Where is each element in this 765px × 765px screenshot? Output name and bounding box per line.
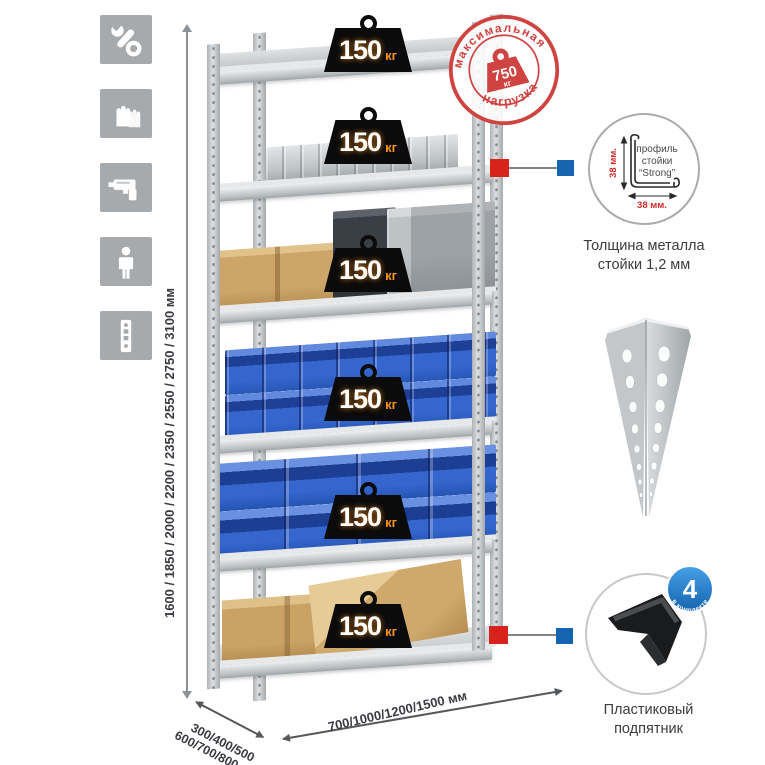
load-value: 150 <box>339 127 381 158</box>
thickness-caption-line2: стойки 1,2 мм <box>566 256 722 275</box>
load-unit: кг <box>385 48 397 63</box>
foot-caption-line2: подпятник <box>576 720 721 739</box>
load-unit: кг <box>385 624 397 639</box>
quantity-value: 4 <box>683 574 698 604</box>
post-profile-detail: 38 мм. 38 мм. профиль стойки “Strong” <box>586 111 702 227</box>
load-unit: кг <box>385 397 397 412</box>
load-badge: 150кг <box>324 15 412 72</box>
rack-post-icon <box>100 311 152 360</box>
load-value: 150 <box>339 384 381 415</box>
load-value: 150 <box>339 255 381 286</box>
load-value: 150 <box>339 35 381 66</box>
profile-label: “Strong” <box>639 168 675 179</box>
load-badge: 150кг <box>324 482 412 539</box>
thickness-caption: Толщина металла стойки 1,2 мм <box>566 237 722 275</box>
quantity-badge: 4 в комплекте <box>667 566 713 614</box>
callout-marker-blue <box>557 160 574 176</box>
load-badge: 150кг <box>324 364 412 421</box>
callout-marker-red <box>489 626 508 644</box>
callout-marker-red <box>490 159 509 177</box>
callout-line <box>509 167 557 169</box>
drill-icon <box>100 163 152 212</box>
load-unit: кг <box>385 268 397 283</box>
arrow-up-icon <box>182 24 192 32</box>
load-value: 150 <box>339 502 381 533</box>
foot-caption-line1: Пластиковый <box>576 701 721 720</box>
load-unit: кг <box>385 140 397 155</box>
load-unit: кг <box>385 515 397 530</box>
callout-line <box>507 634 556 636</box>
callout-marker-blue <box>556 628 573 644</box>
rack-post-left-front <box>207 44 220 690</box>
person-icon <box>100 237 152 286</box>
profile-dim-vertical: 38 мм. <box>608 148 619 178</box>
profile-label: профиль <box>636 143 677 155</box>
thickness-caption-line1: Толщина металла <box>566 237 722 256</box>
height-dimension-label: 1600 / 1850 / 2000 / 2200 / 2350 / 2550 … <box>162 203 180 703</box>
load-badge: 150кг <box>324 107 412 164</box>
product-infographic: 1600 / 1850 / 2000 / 2200 / 2350 / 2550 … <box>0 0 765 765</box>
load-badge: 150кг <box>324 591 412 648</box>
gloves-icon <box>100 89 152 138</box>
arrow-down-icon <box>182 691 192 699</box>
plastic-foot-image: 4 в комплекте <box>578 560 728 710</box>
height-dimension-line <box>186 31 188 691</box>
foot-caption: Пластиковый подпятник <box>576 701 721 739</box>
load-badge: 150кг <box>324 235 412 292</box>
corner-post-image <box>594 312 698 537</box>
profile-label: стойки <box>642 156 673 167</box>
load-value: 150 <box>339 611 381 642</box>
profile-dim-horizontal: 38 мм. <box>637 200 667 211</box>
wrench-icon <box>100 15 152 64</box>
